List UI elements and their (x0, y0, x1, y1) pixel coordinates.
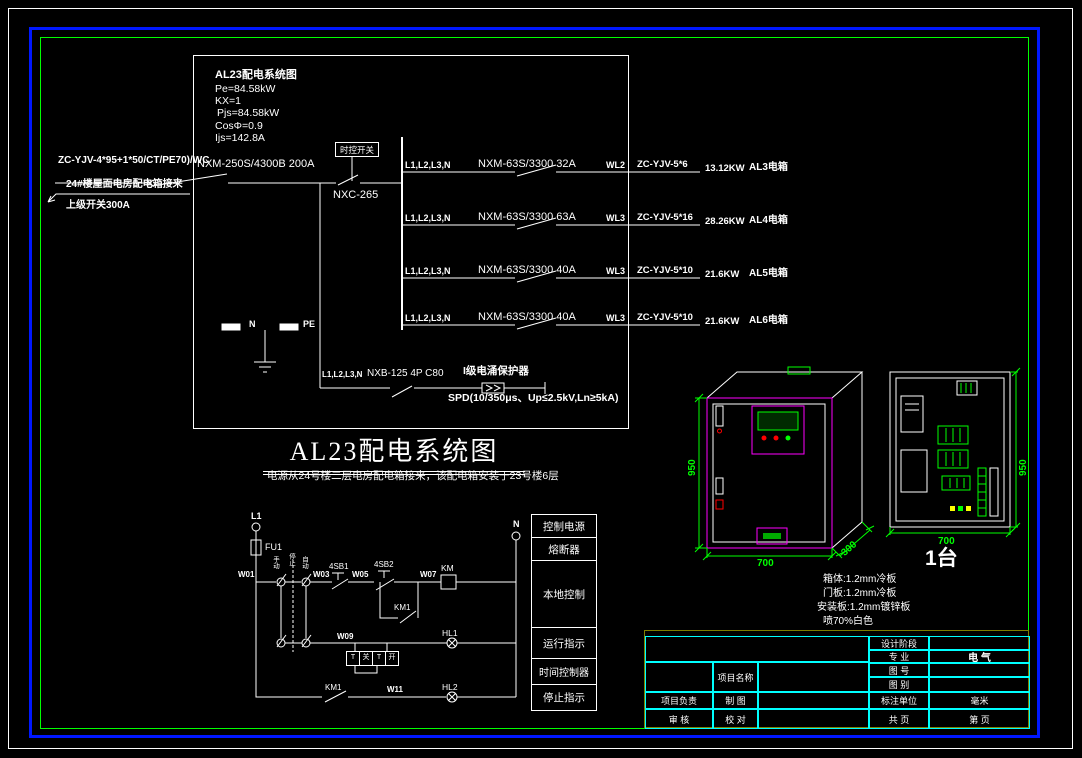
legend-run-indication: 运行指示 (531, 627, 597, 659)
ctrl-wire-w05: W05 (352, 571, 368, 579)
npe-ground-symbols (222, 324, 298, 372)
spd-phases: L1,L2,L3,N (322, 371, 362, 379)
tb-pm-label: 项目负责 (645, 692, 713, 709)
tb-total-pages-label: 共 页 (869, 709, 929, 729)
ctrl-terminal-l1: L1 (251, 512, 262, 521)
branch-phases: L1,L2,L3,N (405, 314, 451, 323)
spd-name: I级电涌保护器 (463, 366, 529, 377)
legend-stop-indication: 停止指示 (531, 684, 597, 711)
source-note: 24#楼屋面电房配电箱接来 (66, 180, 183, 190)
time-controller-terminals: T 关 T 开 (347, 651, 399, 666)
tb-unit-label: 标注单位 (869, 692, 929, 709)
title-block: 项目名称 项目负责 制 图 审 核 校 对 设计阶段 专 业 电 气 图 号 图… (644, 630, 1029, 728)
dim-panel-width: 700 (938, 537, 955, 547)
selector-label-stop: 停止 (287, 553, 294, 569)
ctrl-seal-contact-label: KM1 (394, 604, 410, 612)
n-bar-label: N (249, 320, 256, 329)
tb-draw-label: 制 图 (713, 692, 758, 709)
branch-phases: L1,L2,L3,N (405, 267, 451, 276)
drawing-heading: AL23配电系统图 (263, 431, 525, 475)
tb-design-stage-value (929, 636, 1030, 650)
tb-fig-no-value (929, 663, 1030, 677)
time-switch-label-box: 时控开关 (335, 142, 379, 157)
dim-panel-height: 950 (1019, 459, 1029, 476)
info-ijs: Ijs=142.8A (215, 133, 265, 144)
spd-breaker: NXB-125 4P C80 (367, 369, 444, 379)
branch-target: AL6电箱 (749, 316, 788, 326)
tb-unit-value: 毫米 (929, 692, 1030, 709)
branch-breaker: NXM-63S/3300 40A (478, 265, 576, 276)
ctrl-wire-w03: W03 (313, 571, 329, 579)
info-pjs: Pjs=84.58kW (217, 108, 279, 119)
branch-load: 13.12KW (705, 164, 745, 174)
branch-load: 21.6KW (705, 270, 739, 280)
branch-breaker: NXM-63S/3300 40A (478, 312, 576, 323)
tb-fig-type-label: 图 别 (869, 677, 929, 692)
branch-circuit: WL3 (606, 214, 625, 223)
ctrl-stop-button-label: 4SB1 (329, 563, 349, 571)
timer-cell: T (346, 651, 360, 666)
branch-cable: ZC-YJV-5*16 (637, 213, 693, 223)
info-cos: CosΦ=0.9 (215, 121, 263, 132)
ctrl-wire-w11: W11 (387, 686, 403, 694)
note-body: 箱体:1.2mm冷板 (823, 575, 896, 585)
timer-cell: 开 (385, 651, 399, 666)
ctrl-coil-label: KM (441, 564, 454, 573)
note-coating: 喷70%白色 (823, 617, 873, 627)
ctrl-fuse-label: FU1 (265, 543, 282, 552)
spd-spec: SPD(10/350μs、Up≤2.5kV,Ln≥5kA) (448, 393, 618, 404)
branch-load: 21.6KW (705, 317, 739, 327)
tb-major-value: 电 气 (929, 650, 1030, 663)
branch-breaker: NXM-63S/3300 63A (478, 212, 576, 223)
main-breaker-label: NXM-250S/4300B 200A (197, 159, 314, 170)
legend-fuse: 熔断器 (531, 537, 597, 561)
branch-circuit: WL3 (606, 314, 625, 323)
cabinet-front-view (707, 367, 862, 548)
incoming-cable-label: ZC-YJV-4*95+1*50/CT/PE70)/WC (58, 156, 209, 166)
ctrl-wire-w07: W07 (420, 571, 436, 579)
branch-phases: L1,L2,L3,N (405, 214, 451, 223)
tb-major-label: 专 业 (869, 650, 929, 663)
ctrl-terminal-n: N (513, 520, 520, 529)
control-legend: 控制电源 熔断器 本地控制 运行指示 时间控制器 停止指示 (531, 514, 597, 711)
cad-drawing-canvas: AL23配电系统图 Pe=84.58kW KX=1 Pjs=84.58kW Co… (0, 0, 1082, 758)
selector-label-auto: 自动 (300, 556, 307, 572)
branch-breaker: NXM-63S/3300 32A (478, 159, 576, 170)
ctrl-wire-w09: W09 (337, 633, 353, 641)
ctrl-start-button-label: 4SB2 (374, 561, 394, 569)
tb-draw-value (758, 692, 869, 709)
branch-target: AL4电箱 (749, 216, 788, 226)
branch-target: AL5电箱 (749, 269, 788, 279)
tb-project-name-value (758, 662, 869, 692)
branch-cable: ZC-YJV-5*6 (637, 160, 688, 170)
tb-project-name-label: 项目名称 (713, 662, 758, 692)
info-pe: Pe=84.58kW (215, 84, 275, 95)
note-mounting-plate: 安装板:1.2mm镀锌板 (817, 603, 910, 613)
tb-check-label: 校 对 (713, 709, 758, 729)
tb-empty-left (645, 662, 713, 692)
control-circuit-lines (251, 523, 520, 702)
branch-cable: ZC-YJV-5*10 (637, 266, 693, 276)
branch-circuit: WL3 (606, 267, 625, 276)
tb-empty-top (645, 636, 869, 662)
cabinet-qty: 1台 (925, 548, 958, 569)
tb-fig-type-value (929, 677, 1030, 692)
ctrl-run-lamp-label: HL1 (442, 629, 458, 638)
ctrl-wire-w01: W01 (238, 571, 254, 579)
upstream-switch-note: 上级开关300A (66, 201, 130, 211)
cabinet-panel-view (890, 372, 1010, 527)
dim-front-width: 700 (757, 559, 774, 569)
ctrl-stop-lamp-label: HL2 (442, 683, 458, 692)
note-door: 门板:1.2mm冷板 (823, 589, 896, 599)
tb-page-no-label: 第 页 (929, 709, 1030, 729)
info-kx: KX=1 (215, 96, 241, 107)
branch-phases: L1,L2,L3,N (405, 161, 451, 170)
branch-load: 28.26KW (705, 217, 745, 227)
dim-front-height: 950 (688, 459, 698, 476)
legend-local-control: 本地控制 (531, 560, 597, 628)
tb-check-value (758, 709, 869, 729)
branch-cable: ZC-YJV-5*10 (637, 313, 693, 323)
timer-cell: T (372, 651, 386, 666)
branch-target: AL3电箱 (749, 163, 788, 173)
contactor-label: NXC-265 (333, 190, 378, 201)
timer-cell: 关 (359, 651, 373, 666)
dimension-lines (695, 368, 1020, 560)
pe-bar-label: PE (303, 320, 315, 329)
selector-label-manual: 手动 (271, 556, 278, 572)
tb-fig-no-label: 图 号 (869, 663, 929, 677)
ctrl-stop-contact-label: KM1 (325, 684, 341, 692)
branch-circuit: WL2 (606, 161, 625, 170)
info-block-title: AL23配电系统图 (215, 70, 297, 81)
tb-audit-label: 审 核 (645, 709, 713, 729)
drawing-note: 电源从24号楼二层电房配电箱接来，该配电箱安装于23号楼6层 (267, 471, 559, 482)
tb-design-stage-label: 设计阶段 (869, 636, 929, 650)
legend-control-power: 控制电源 (531, 514, 597, 538)
legend-time-controller: 时间控制器 (531, 658, 597, 685)
